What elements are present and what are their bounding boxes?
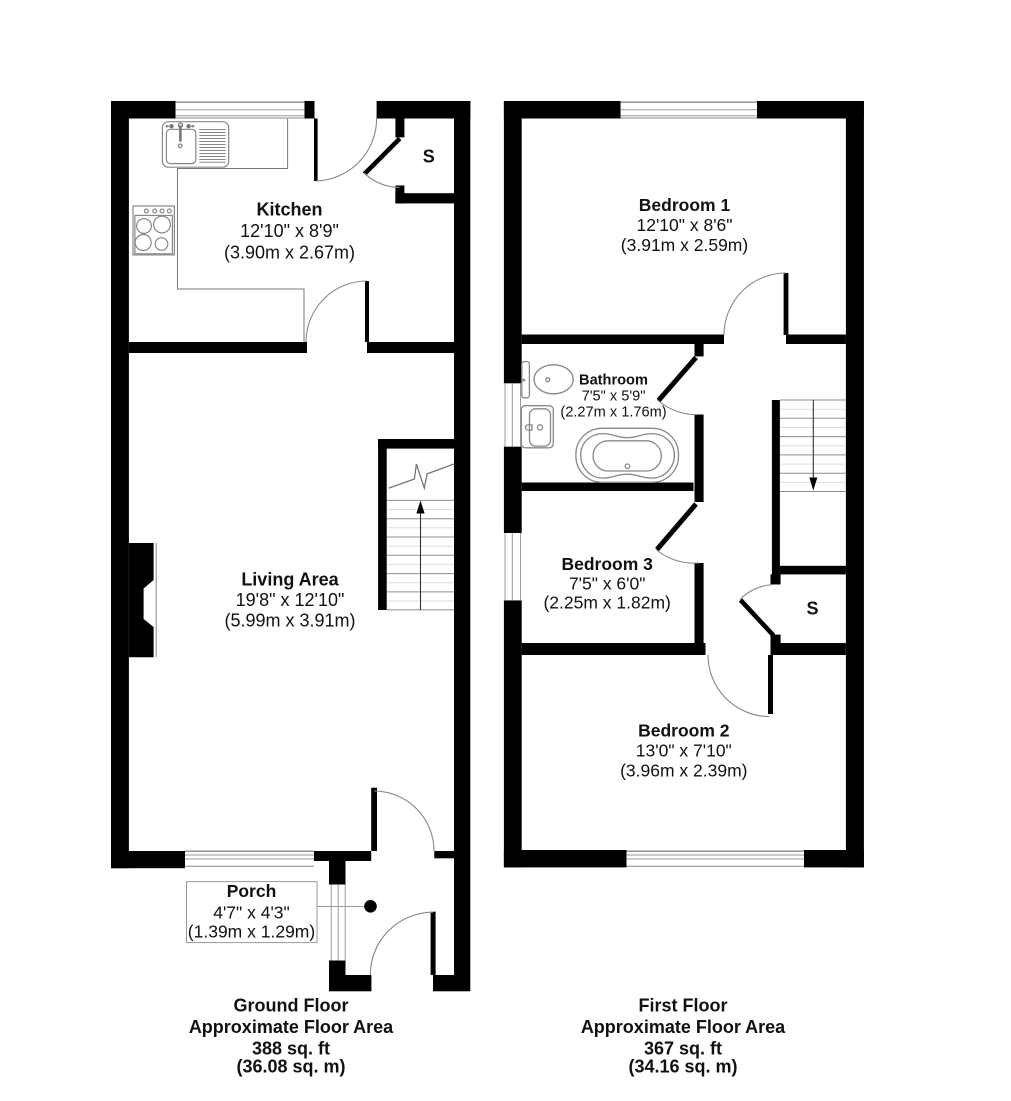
- svg-text:388 sq. ft: 388 sq. ft: [252, 1039, 330, 1059]
- svg-text:First Floor: First Floor: [639, 996, 728, 1016]
- svg-text:S: S: [423, 147, 435, 167]
- svg-text:Approximate Floor Area: Approximate Floor Area: [189, 1017, 394, 1037]
- svg-text:12'10" x 8'6": 12'10" x 8'6": [637, 215, 733, 235]
- svg-text:Bedroom 2: Bedroom 2: [638, 721, 730, 741]
- svg-text:Kitchen: Kitchen: [256, 200, 322, 220]
- svg-text:(36.08 sq. m): (36.08 sq. m): [236, 1057, 345, 1077]
- svg-text:Porch: Porch: [227, 881, 277, 901]
- svg-text:19'8" x 12'10": 19'8" x 12'10": [236, 590, 345, 610]
- svg-text:(3.96m x 2.39m): (3.96m x 2.39m): [620, 761, 747, 781]
- svg-text:12'10" x 8'9": 12'10" x 8'9": [240, 221, 339, 241]
- svg-text:Living Area: Living Area: [241, 570, 339, 590]
- svg-text:Bathroom: Bathroom: [579, 373, 648, 389]
- svg-text:367 sq. ft: 367 sq. ft: [644, 1039, 722, 1059]
- svg-text:Bedroom 3: Bedroom 3: [561, 554, 653, 574]
- svg-text:(3.91m x 2.59m): (3.91m x 2.59m): [621, 235, 748, 255]
- svg-text:(1.39m x 1.29m): (1.39m x 1.29m): [188, 922, 315, 942]
- svg-text:7'5" x 5'9": 7'5" x 5'9": [582, 389, 646, 405]
- svg-text:13'0" x 7'10": 13'0" x 7'10": [636, 741, 732, 761]
- svg-text:Ground Floor: Ground Floor: [234, 996, 349, 1016]
- svg-text:(2.25m x 1.82m): (2.25m x 1.82m): [543, 593, 670, 613]
- svg-text:S: S: [806, 599, 818, 619]
- svg-text:Bedroom 1: Bedroom 1: [639, 195, 731, 215]
- svg-text:(5.99m x 3.91m): (5.99m x 3.91m): [224, 611, 355, 631]
- svg-text:(3.90m x 2.67m): (3.90m x 2.67m): [224, 243, 355, 263]
- svg-text:(2.27m x 1.76m): (2.27m x 1.76m): [560, 405, 666, 421]
- svg-text:4'7" x 4'3": 4'7" x 4'3": [213, 903, 290, 923]
- svg-text:7'5" x 6'0": 7'5" x 6'0": [569, 574, 646, 594]
- svg-text:Approximate Floor Area: Approximate Floor Area: [581, 1017, 786, 1037]
- svg-text:(34.16 sq. m): (34.16 sq. m): [628, 1057, 737, 1077]
